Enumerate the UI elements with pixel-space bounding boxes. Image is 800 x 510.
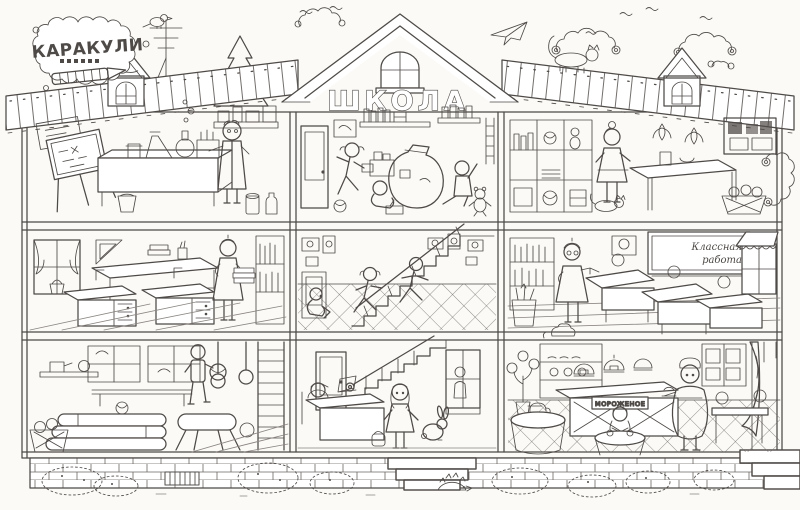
cloud bbox=[762, 153, 794, 206]
shelf bbox=[40, 361, 98, 378]
teddy-bear-icon bbox=[469, 187, 491, 216]
paper-plane-icon bbox=[491, 22, 527, 45]
room-classroom-left bbox=[30, 235, 286, 330]
wall-shelf bbox=[214, 106, 278, 128]
door bbox=[301, 126, 328, 208]
room-gym bbox=[30, 342, 288, 452]
window-curtains bbox=[34, 240, 80, 294]
chalkboard-text-line1: Классная bbox=[691, 242, 742, 253]
girl-standing bbox=[596, 122, 630, 203]
girl-with-bunny bbox=[384, 384, 418, 448]
child-drawing bbox=[371, 181, 403, 214]
window-awning bbox=[736, 232, 778, 294]
room-playroom bbox=[301, 105, 494, 216]
coloring-poster: ШКОЛА bbox=[0, 0, 800, 510]
room-entrance-lobby bbox=[298, 336, 496, 448]
gym-windows bbox=[88, 346, 200, 382]
roof-curl bbox=[708, 61, 734, 69]
toy-sack bbox=[389, 145, 444, 208]
bookcase bbox=[256, 236, 284, 324]
bookcase bbox=[510, 238, 554, 310]
chalkboard: Классная работа bbox=[648, 232, 750, 276]
serving-counter: МОРОЖЕНОЕ bbox=[556, 382, 678, 436]
vault-buck bbox=[176, 414, 240, 450]
flying-birds bbox=[300, 7, 712, 35]
room-classroom-right: Классная работа bbox=[508, 232, 780, 334]
triangle-ruler bbox=[96, 240, 122, 264]
toy-box bbox=[370, 152, 394, 176]
reception-desk bbox=[302, 376, 384, 440]
vent-grate bbox=[165, 472, 199, 485]
basket bbox=[722, 185, 766, 214]
student-desk bbox=[64, 270, 136, 326]
craft-table bbox=[630, 152, 736, 210]
wall-pictures bbox=[302, 234, 483, 266]
double-door bbox=[702, 344, 746, 386]
chalkboard-text-line2: работа bbox=[702, 255, 742, 266]
floor-bottles bbox=[118, 193, 277, 214]
bunny-icon bbox=[422, 406, 450, 440]
room-nature-corner bbox=[510, 118, 776, 214]
room-staircase-hall bbox=[298, 224, 496, 330]
right-wing-roof bbox=[502, 60, 794, 133]
gymnastic-rings bbox=[211, 342, 253, 388]
room-science-lab bbox=[36, 100, 278, 214]
room-cafeteria: МОРОЖЕНОЕ bbox=[507, 324, 780, 455]
wall-plants bbox=[653, 124, 703, 144]
right-dormer bbox=[658, 48, 706, 106]
lobby-staircase bbox=[346, 336, 446, 396]
crow-icon bbox=[143, 15, 172, 29]
wall-ladder bbox=[486, 118, 494, 164]
child-sitting bbox=[443, 161, 477, 206]
cloud bbox=[552, 28, 620, 54]
cat-icon bbox=[591, 194, 626, 212]
child-running bbox=[337, 143, 373, 194]
wall-bars bbox=[258, 342, 284, 450]
entrance-door bbox=[446, 350, 480, 414]
shelving-unit bbox=[510, 120, 592, 212]
student-desk-with-pupil bbox=[586, 254, 654, 322]
gym-bench bbox=[92, 390, 192, 406]
